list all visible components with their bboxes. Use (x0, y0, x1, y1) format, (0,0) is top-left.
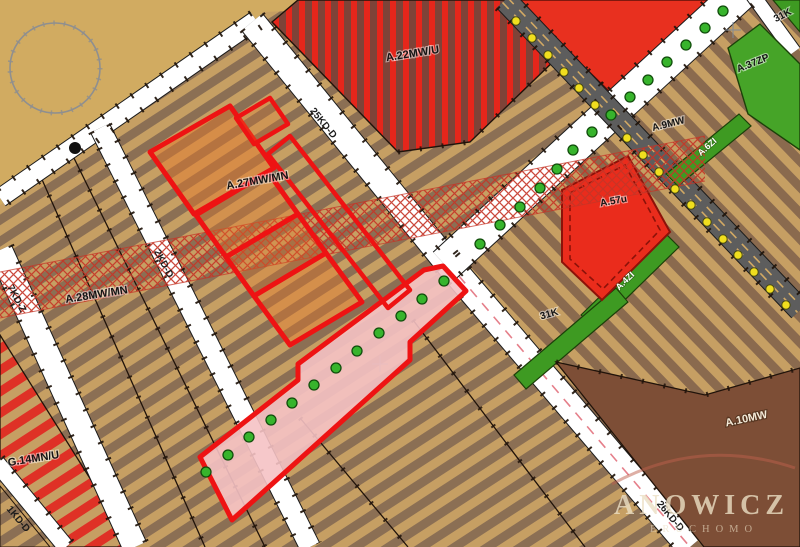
watermark-sub-text: ERUCHOMO (650, 524, 758, 535)
zoning-map-canvas: A.22MW/U 31K A.37ZP A.9MW A.6ZI A.57u A.… (0, 0, 800, 547)
watermark-main-text: ANOWICZ (614, 490, 789, 521)
black-node-dot (69, 142, 81, 154)
zoning-map[interactable]: A.22MW/U 31K A.37ZP A.9MW A.6ZI A.57u A.… (0, 0, 800, 547)
